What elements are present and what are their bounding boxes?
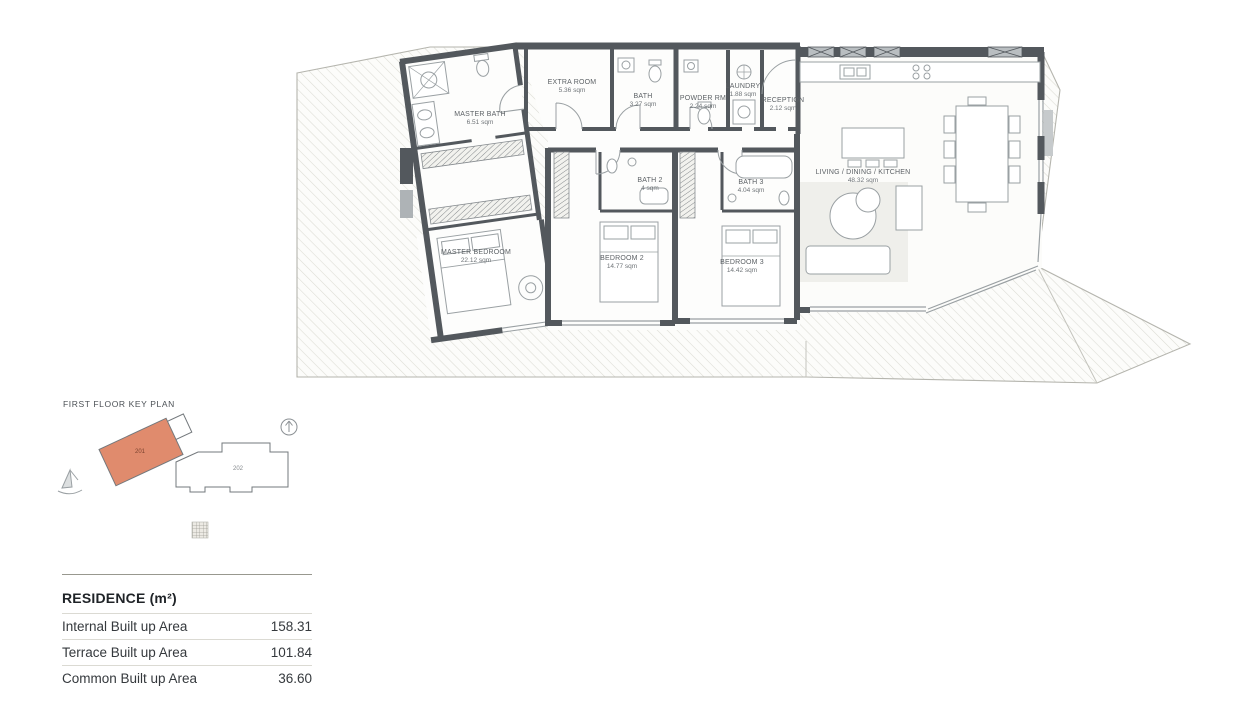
- room-label-bath-2: BATH 2 4 sqm: [637, 176, 662, 194]
- row-value: 36.60: [278, 671, 312, 686]
- shaft-block-2: [400, 190, 413, 218]
- room-name: BATH 2: [637, 176, 662, 185]
- room-label-living: LIVING / DINING / KITCHEN 48.32 sqm: [816, 168, 911, 186]
- shower: [409, 62, 449, 99]
- room-name: MASTER BEDROOM: [441, 248, 511, 257]
- room-area: 2.24 sqm: [680, 103, 726, 112]
- room-name: RECEPTION: [762, 96, 805, 105]
- room-name: LAUNDRY: [726, 82, 761, 91]
- key-plan-title: FIRST FLOOR KEY PLAN: [63, 399, 175, 409]
- row-label: Terrace Built up Area: [62, 645, 187, 660]
- room-label-master-bedroom: MASTER BEDROOM 22.12 sqm: [441, 248, 511, 266]
- room-name: MASTER BATH: [454, 110, 505, 119]
- row-label: Common Built up Area: [62, 671, 197, 686]
- room-area: 48.32 sqm: [816, 177, 911, 186]
- room-name: POWDER RM: [680, 94, 726, 103]
- north-arrow-sketch-icon: [58, 470, 82, 494]
- room-label-bath-3: BATH 3 4.04 sqm: [738, 178, 765, 196]
- room-area: 14.42 sqm: [720, 267, 764, 276]
- room-name: BEDROOM 3: [720, 258, 764, 267]
- room-label-powder-rm: POWDER RM 2.24 sqm: [680, 94, 726, 112]
- table-row: Terrace Built up Area 101.84: [62, 639, 312, 665]
- room-area: 5.36 sqm: [548, 87, 597, 96]
- room-area: 3.27 sqm: [630, 101, 657, 110]
- room-label-extra-room: EXTRA ROOM 5.36 sqm: [548, 78, 597, 96]
- room-label-reception: RECEPTION 2.12 sqm: [762, 96, 805, 114]
- north-indicator-icon: [281, 419, 297, 435]
- room-label-master-bath: MASTER BATH 6.51 sqm: [454, 110, 505, 128]
- wardrobe-bedroom-3: [680, 152, 695, 218]
- room-area: 22.12 sqm: [441, 257, 511, 266]
- legend-hatch-swatch: [192, 522, 208, 538]
- shaft-block: [400, 148, 413, 184]
- divider-line: [62, 574, 312, 575]
- room-area: 14.77 sqm: [600, 263, 644, 272]
- page-canvas: MASTER BATH 6.51 sqm EXTRA ROOM 5.36 sqm…: [0, 0, 1240, 720]
- room-name: EXTRA ROOM: [548, 78, 597, 87]
- room-name: LIVING / DINING / KITCHEN: [816, 168, 911, 177]
- room-area: 6.51 sqm: [454, 119, 505, 128]
- kitchen-counter: [800, 62, 1040, 82]
- room-area: 4.04 sqm: [738, 187, 765, 196]
- room-name: BEDROOM 2: [600, 254, 644, 263]
- planter-block: [1044, 110, 1053, 156]
- row-value: 158.31: [271, 619, 312, 634]
- room-area: 4 sqm: [637, 185, 662, 194]
- room-area: 1.88 sqm: [726, 91, 761, 100]
- room-label-bath: BATH 3.27 sqm: [630, 92, 657, 110]
- room-name: BATH: [630, 92, 657, 101]
- residence-table-title: RESIDENCE (m²): [62, 590, 312, 613]
- row-value: 101.84: [271, 645, 312, 660]
- key-plan-unit-202-label: 202: [233, 466, 243, 472]
- master-bed: [437, 229, 511, 313]
- table-row: Internal Built up Area 158.31: [62, 613, 312, 639]
- room-label-bedroom-3: BEDROOM 3 14.42 sqm: [720, 258, 764, 276]
- key-plan: [58, 414, 297, 538]
- residence-table: RESIDENCE (m²) Internal Built up Area 15…: [62, 590, 312, 691]
- kitchen-island: [842, 128, 904, 167]
- row-label: Internal Built up Area: [62, 619, 187, 634]
- room-name: BATH 3: [738, 178, 765, 187]
- room-area: 2.12 sqm: [762, 105, 805, 114]
- room-label-bedroom-2: BEDROOM 2 14.77 sqm: [600, 254, 644, 272]
- key-plan-unit-201-label: 201: [135, 449, 145, 455]
- wardrobe-bedroom-2: [554, 152, 569, 218]
- room-label-laundry: LAUNDRY 1.88 sqm: [726, 82, 761, 100]
- table-row: Common Built up Area 36.60: [62, 665, 312, 691]
